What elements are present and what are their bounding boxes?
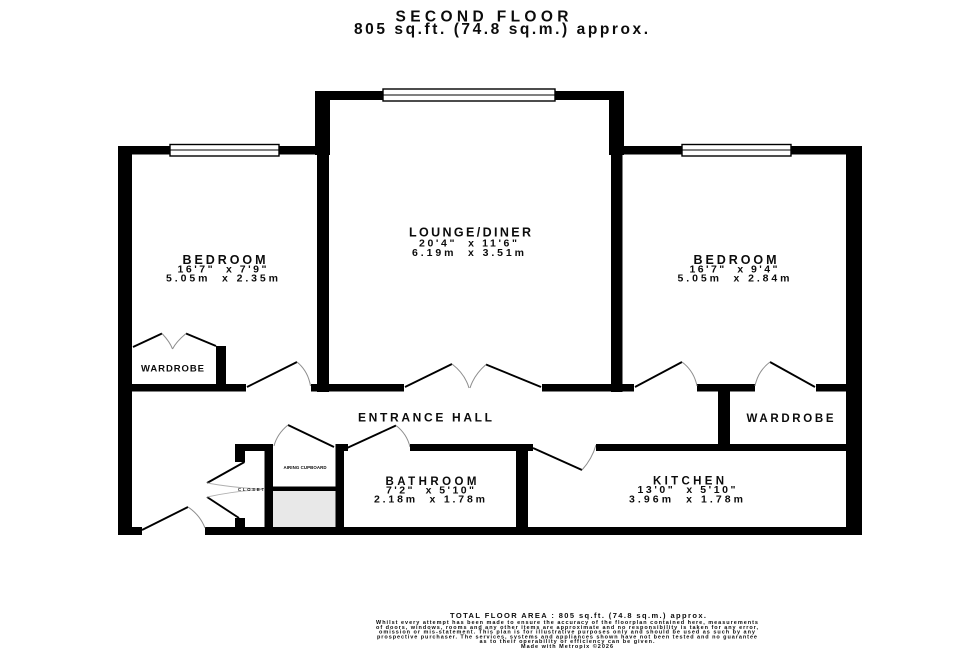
svg-text:TOTAL FLOOR AREA : 805 sq.ft.: TOTAL FLOOR AREA : 805 sq.ft. (74.8 sq.m… — [450, 611, 706, 620]
svg-text:805 sq.ft. (74.8 sq.m.) approx: 805 sq.ft. (74.8 sq.m.) approx. — [354, 21, 648, 38]
svg-text:6.19m x 3.51m: 6.19m x 3.51m — [412, 247, 524, 259]
svg-text:5.05m x 2.84m: 5.05m x 2.84m — [678, 273, 790, 285]
svg-text:Made with Metropix ©2026: Made with Metropix ©2026 — [521, 643, 613, 650]
svg-text:5.05m x 2.35m: 5.05m x 2.35m — [166, 273, 278, 285]
svg-text:2.18m x 1.78m: 2.18m x 1.78m — [374, 494, 485, 506]
svg-text:WARDROBE: WARDROBE — [141, 364, 204, 375]
svg-text:3.96m x 1.78m: 3.96m x 1.78m — [629, 494, 743, 506]
svg-text:AIRING CUPBOARD: AIRING CUPBOARD — [284, 465, 327, 470]
